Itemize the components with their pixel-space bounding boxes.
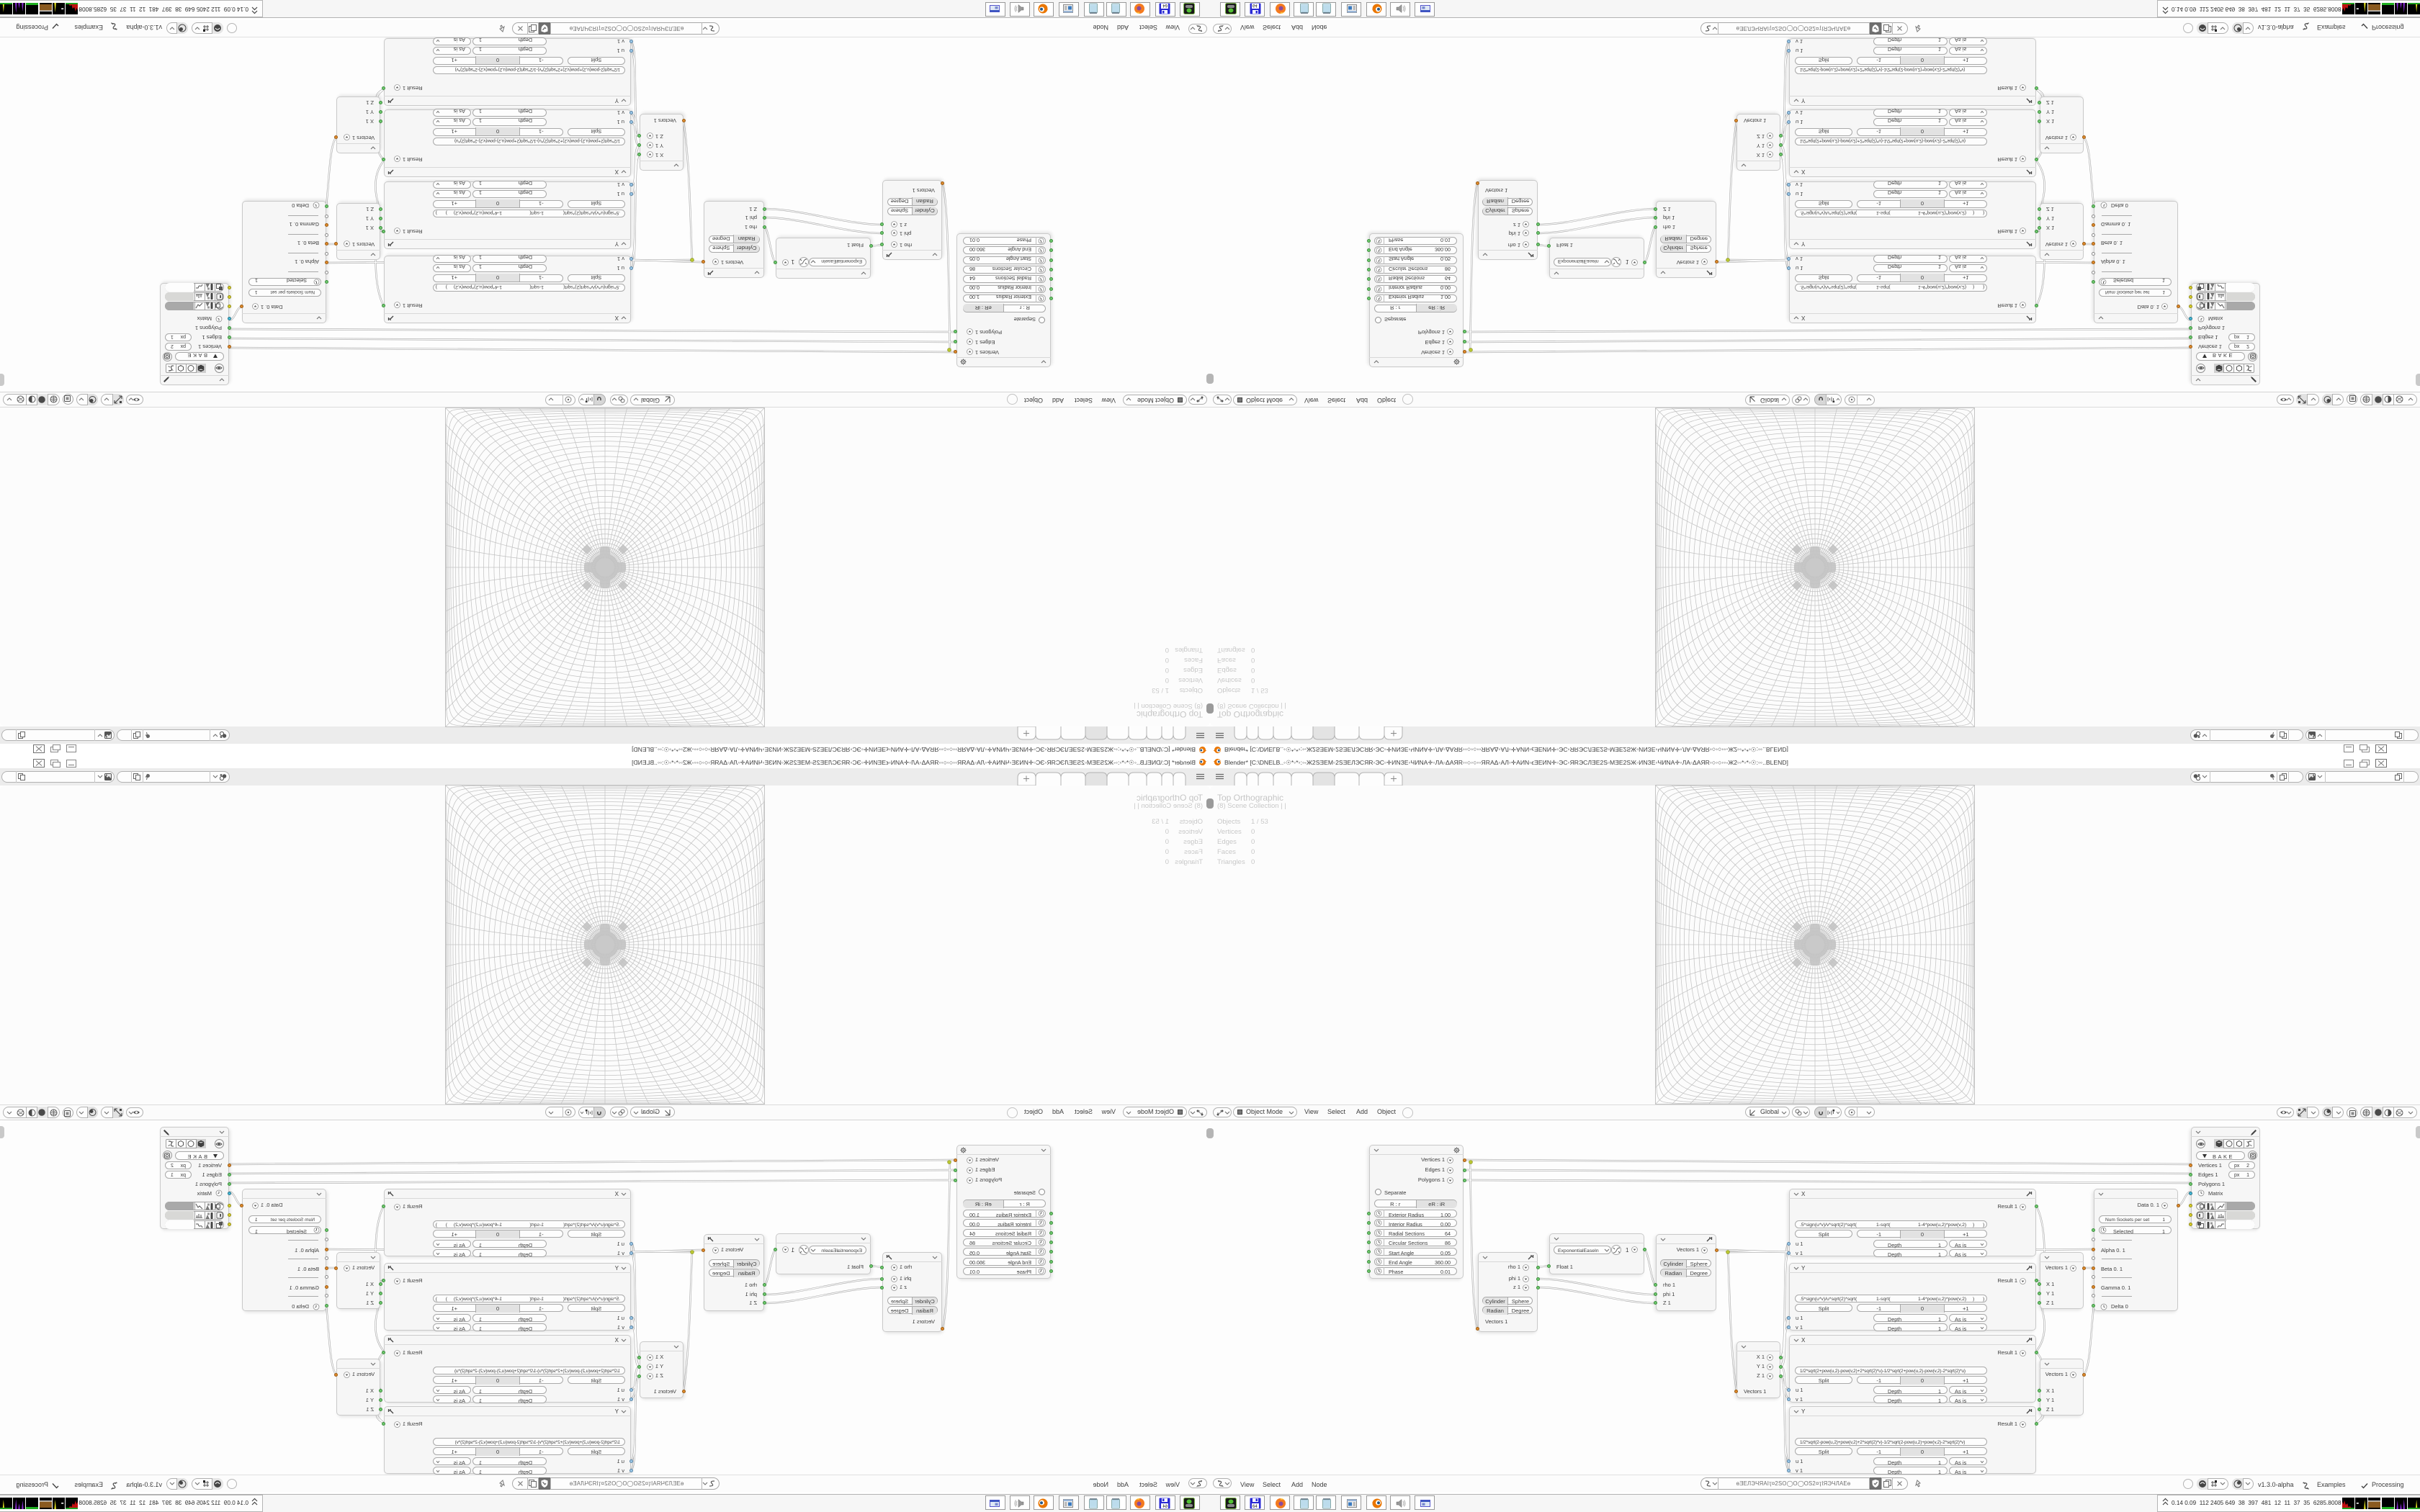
svg-text:64: 64 [1252,3,1258,7]
svg-text:BAKE: BAKE [2213,352,2234,359]
svg-text:64: 64 [1252,1505,1258,1509]
svg-text:BAKE: BAKE [186,1153,207,1160]
svg-text:BAKE: BAKE [186,352,207,359]
svg-text:BAKE: BAKE [2213,1153,2234,1160]
svg-text:64: 64 [1162,1505,1168,1509]
svg-text:64: 64 [1162,3,1168,7]
